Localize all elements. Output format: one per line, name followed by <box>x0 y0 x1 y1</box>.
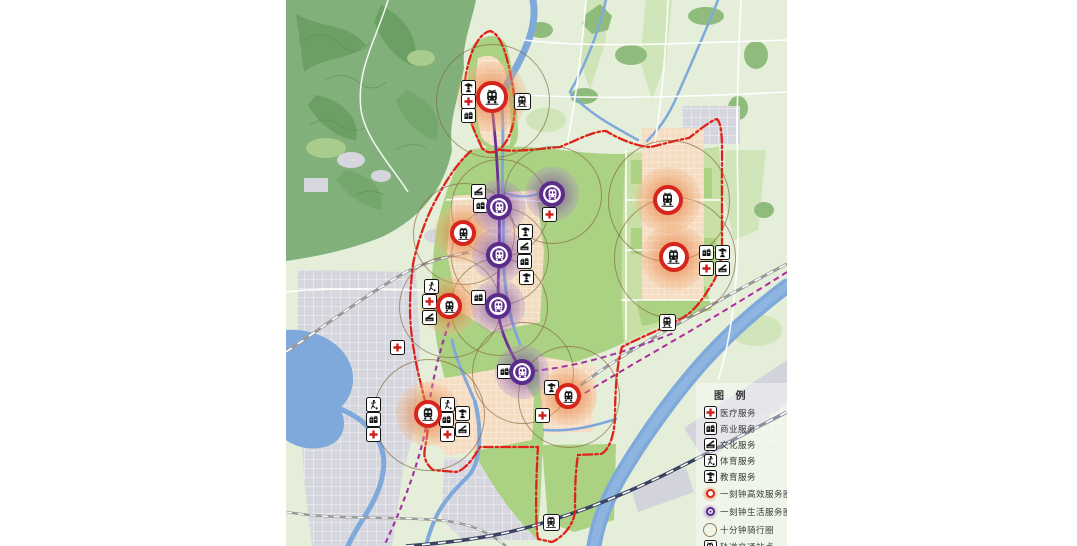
education-service-icon <box>519 270 534 285</box>
medical-service-icon <box>542 207 557 222</box>
efficient-service-marker <box>555 383 581 409</box>
efficient-service-marker <box>436 293 462 319</box>
culture-legend-icon <box>700 438 720 451</box>
sports-service-icon <box>440 397 455 412</box>
life-service-marker <box>486 194 512 220</box>
legend-row-station: 轨道交通站点 <box>700 539 787 546</box>
sports-service-icon <box>366 397 381 412</box>
legend-item-label: 医疗服务 <box>720 407 756 419</box>
planning-map: 图 例 医疗服务商业服务文化服务体育服务教育服务一刻钟高效服务圈一刻钟生活服务圈… <box>286 0 787 546</box>
medical-service-icon <box>461 94 476 109</box>
education-legend-icon <box>700 470 720 483</box>
medical-legend-icon <box>700 406 720 419</box>
sports-service-icon <box>424 279 439 294</box>
rail-station-marker <box>659 314 676 331</box>
sports-legend-icon <box>700 454 720 467</box>
legend-row-education: 教育服务 <box>700 469 787 484</box>
life-legend-icon <box>700 504 720 520</box>
commercial-service-icon <box>461 108 476 123</box>
culture-service-icon <box>715 261 730 276</box>
legend-item-label: 轨道交通站点 <box>720 541 774 546</box>
medical-service-icon <box>440 427 455 442</box>
medical-service-icon <box>390 340 405 355</box>
efficient-service-marker <box>476 81 507 112</box>
legend-row-sports: 体育服务 <box>700 453 787 468</box>
legend-row-medical: 医疗服务 <box>700 405 787 420</box>
legend-row-life: 一刻钟生活服务圈 <box>700 503 787 520</box>
station-legend-icon <box>700 540 720 546</box>
legend-row-commercial: 商业服务 <box>700 421 787 436</box>
education-service-icon <box>455 406 470 421</box>
commercial-service-icon <box>517 254 532 269</box>
medical-service-icon <box>699 261 714 276</box>
rail-station-marker <box>543 514 560 531</box>
life-service-marker <box>485 293 511 319</box>
life-service-marker <box>539 181 565 207</box>
planning-map-figure: 图 例 医疗服务商业服务文化服务体育服务教育服务一刻钟高效服务圈一刻钟生活服务圈… <box>0 0 1077 546</box>
culture-service-icon <box>455 422 470 437</box>
legend-item-label: 十分钟骑行圈 <box>720 524 774 536</box>
legend-rows: 医疗服务商业服务文化服务体育服务教育服务一刻钟高效服务圈一刻钟生活服务圈十分钟骑… <box>700 405 787 546</box>
medical-service-icon <box>366 427 381 442</box>
legend-row-culture: 文化服务 <box>700 437 787 452</box>
commercial-service-icon <box>366 412 381 427</box>
life-service-marker <box>486 242 512 268</box>
commercial-service-icon <box>471 290 486 305</box>
legend-item-label: 商业服务 <box>720 423 756 435</box>
education-service-icon <box>461 80 476 95</box>
cycling-legend-icon <box>700 523 720 537</box>
legend-item-label: 教育服务 <box>720 471 756 483</box>
efficient-service-marker <box>653 185 683 215</box>
legend-item-label: 一刻钟高效服务圈 <box>720 488 787 500</box>
culture-service-icon <box>517 239 532 254</box>
commercial-legend-icon <box>700 422 720 435</box>
efficient-legend-icon <box>700 486 720 502</box>
legend-item-label: 一刻钟生活服务圈 <box>720 506 787 518</box>
legend-row-cycling: 十分钟骑行圈 <box>700 521 787 538</box>
legend-item-label: 体育服务 <box>720 455 756 467</box>
culture-service-icon <box>471 184 486 199</box>
rail-station-marker <box>514 93 531 110</box>
medical-service-icon <box>422 294 437 309</box>
commercial-service-icon <box>699 245 714 260</box>
legend-row-efficient: 一刻钟高效服务圈 <box>700 485 787 502</box>
culture-service-icon <box>422 310 437 325</box>
legend-title: 图 例 <box>714 387 787 402</box>
efficient-service-marker <box>659 242 689 272</box>
efficient-service-marker <box>450 220 476 246</box>
education-service-icon <box>715 245 730 260</box>
legend: 图 例 医疗服务商业服务文化服务体育服务教育服务一刻钟高效服务圈一刻钟生活服务圈… <box>696 383 787 546</box>
life-service-marker <box>509 359 535 385</box>
legend-item-label: 文化服务 <box>720 439 756 451</box>
education-service-icon <box>518 224 533 239</box>
medical-service-icon <box>535 408 550 423</box>
